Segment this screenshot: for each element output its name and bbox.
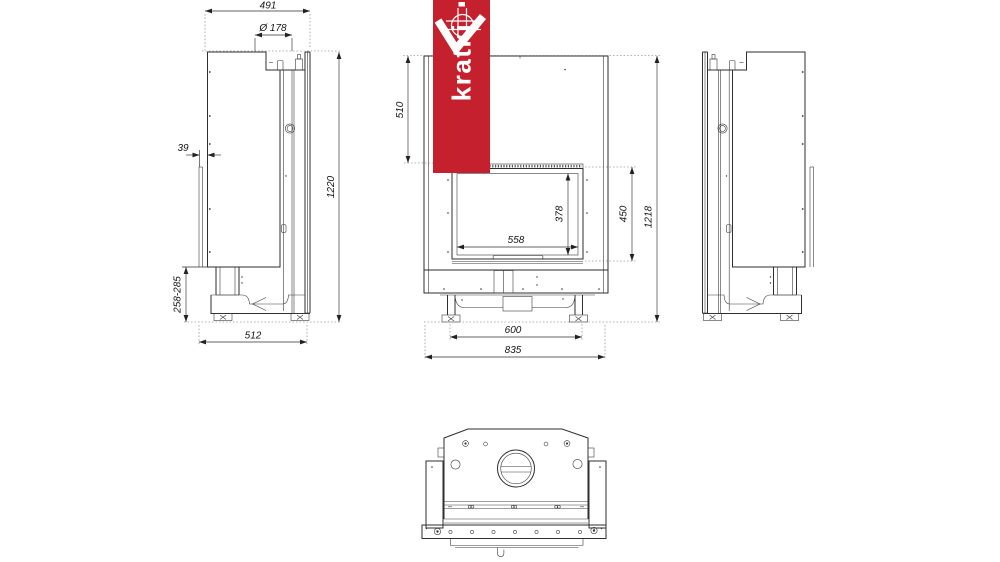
dim-glass-width: 558 [508, 235, 525, 246]
dim-height-total-front: 1218 [644, 205, 655, 228]
handle-hook [498, 548, 504, 557]
dim-width-total: 835 [505, 345, 522, 356]
kratki-banner: kratki [433, 0, 490, 173]
fireplace-dimension-drawing: 491 Ø 178 39 1220 258-285 512 [0, 0, 1000, 562]
dim-feet-spacing: 600 [505, 325, 522, 336]
top-view [422, 429, 606, 557]
kratki-logo-icon [433, 0, 490, 55]
dim-base-height-range: 258-285 [173, 276, 184, 314]
dim-rear-offset: 39 [177, 143, 189, 154]
right-side-view [703, 52, 814, 321]
dim-glass-height: 378 [555, 205, 566, 222]
door-handle [493, 256, 543, 260]
dim-top-to-opening: 510 [395, 101, 406, 118]
dim-base-depth: 512 [245, 331, 262, 342]
dim-opening-height: 450 [619, 205, 630, 222]
dim-flue-diameter: Ø 178 [258, 23, 287, 34]
dim-depth-total: 491 [260, 1, 277, 12]
flue-opening [498, 450, 535, 487]
technical-drawing: 491 Ø 178 39 1220 258-285 512 [0, 0, 1000, 562]
dim-height-total-side: 1220 [326, 175, 337, 198]
left-side-view: 491 Ø 178 39 1220 258-285 512 [173, 1, 343, 346]
